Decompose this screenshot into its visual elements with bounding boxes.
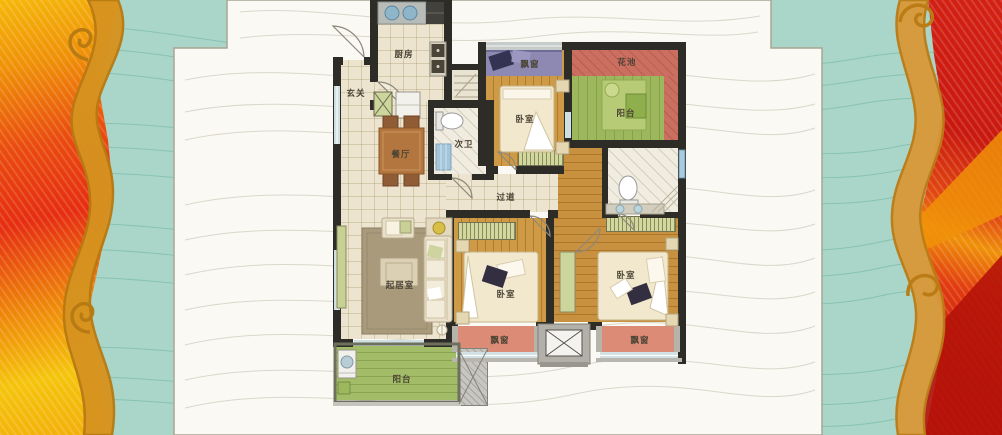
nightstand (456, 240, 469, 252)
room-label-balcony-bottom: 阳台 (392, 373, 411, 385)
kitchen-sink (378, 2, 426, 24)
balcony-outer-sill (333, 402, 461, 406)
toilet (436, 112, 463, 130)
sofa (424, 236, 452, 322)
stove (430, 42, 446, 76)
washer (338, 350, 356, 378)
room-label-bedroom-top: 卧室 (515, 113, 534, 125)
balcony-table (602, 80, 646, 130)
floorplan-poster: 厨房 玄关 餐厅 次卫 飘窗 卧室 花池 阳台 过道 起居室 卧室 卧室 飘窗 … (0, 0, 1002, 435)
stairs (454, 74, 478, 97)
duct-shaft (374, 92, 392, 116)
bed-middle (462, 252, 538, 322)
room-label-bedroom-middle: 卧室 (496, 288, 515, 300)
fridge (396, 92, 420, 118)
nightstand (456, 312, 469, 324)
armchair (382, 218, 414, 238)
room-label-bay-window-left: 飘窗 (490, 334, 509, 346)
kitchen-cabinet (426, 2, 444, 24)
side-table (426, 218, 452, 238)
nightstand (666, 314, 678, 326)
elevator (538, 324, 590, 367)
shower (436, 144, 451, 170)
room-label-hallway: 过道 (496, 191, 515, 203)
tv-stand (337, 226, 346, 308)
room-label-flower-bed: 花池 (617, 56, 636, 68)
room-label-living-room: 起居室 (386, 279, 415, 291)
room-label-dining: 餐厅 (391, 148, 410, 160)
planter-box (338, 382, 350, 394)
bench (560, 252, 575, 312)
nightstand (556, 80, 569, 92)
room-label-balcony-top: 阳台 (616, 107, 635, 119)
nightstand (666, 238, 678, 250)
floor-lamp (437, 325, 447, 335)
room-label-bay-window-right: 飘窗 (630, 334, 649, 346)
room-label-second-bath: 次卫 (454, 138, 473, 150)
room-label-kitchen: 厨房 (394, 48, 413, 60)
nightstand (556, 142, 569, 154)
room-label-entry: 玄关 (346, 87, 365, 99)
shower-corner (652, 186, 678, 212)
room-label-bedroom-right: 卧室 (616, 269, 635, 281)
room-label-bay-window-top: 飘窗 (520, 58, 539, 70)
toilet-master (619, 176, 638, 207)
floorplan-linework (0, 0, 1002, 435)
bed-right (598, 252, 668, 320)
